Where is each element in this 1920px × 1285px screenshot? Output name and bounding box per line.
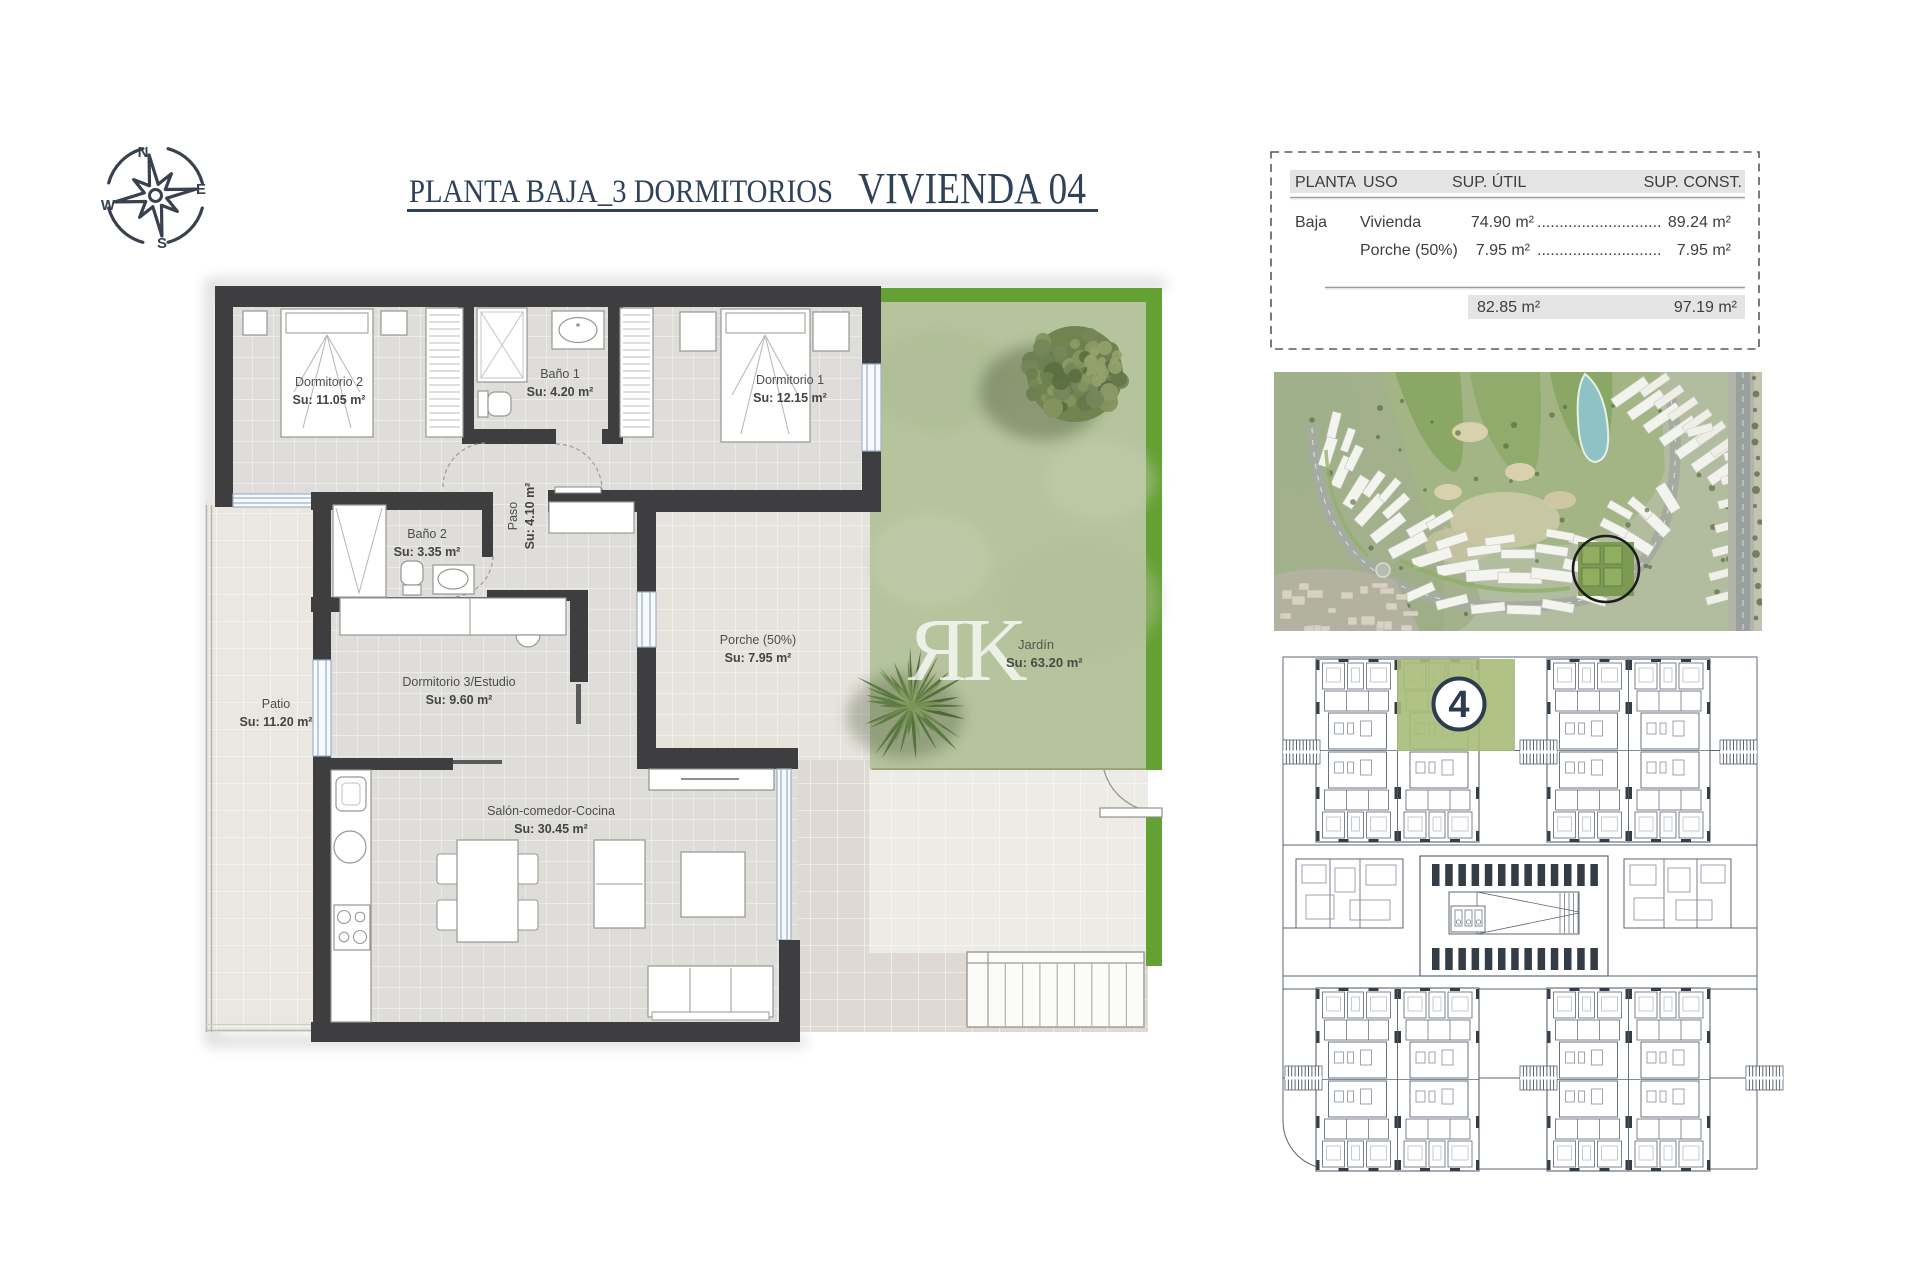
svg-text:Su: 30.45 m²: Su: 30.45 m² bbox=[514, 822, 588, 836]
svg-text:Su: 4.10 m²: Su: 4.10 m² bbox=[523, 483, 537, 550]
svg-text:Dormitorio 3/Estudio: Dormitorio 3/Estudio bbox=[402, 675, 515, 689]
svg-text:PLANTA: PLANTA bbox=[1295, 174, 1356, 191]
svg-text:Su: 12.15 m²: Su: 12.15 m² bbox=[753, 391, 827, 405]
svg-text:Dormitorio 2: Dormitorio 2 bbox=[295, 375, 363, 389]
svg-text:Su: 4.20 m²: Su: 4.20 m² bbox=[527, 385, 594, 399]
svg-text:Su: 11.20 m²: Su: 11.20 m² bbox=[240, 715, 313, 729]
svg-text:S: S bbox=[157, 235, 167, 252]
svg-text:Patio: Patio bbox=[262, 697, 291, 711]
svg-text:Su: 3.35 m²: Su: 3.35 m² bbox=[394, 545, 461, 559]
svg-text:PLANTA BAJA_3 DORMITORIOS: PLANTA BAJA_3 DORMITORIOS bbox=[409, 174, 833, 210]
svg-text:............................: ............................ bbox=[1537, 242, 1661, 259]
svg-text:Baja: Baja bbox=[1295, 214, 1327, 231]
svg-text:VIVIENDA 04: VIVIENDA 04 bbox=[858, 164, 1086, 213]
svg-text:Salón-comedor-Cocina: Salón-comedor-Cocina bbox=[487, 804, 615, 818]
svg-text:ЯK: ЯK bbox=[907, 601, 1027, 700]
svg-text:Jardín: Jardín bbox=[1018, 637, 1054, 652]
svg-text:Porche (50%): Porche (50%) bbox=[720, 633, 796, 647]
svg-text:SUP. CONST.: SUP. CONST. bbox=[1644, 174, 1742, 191]
svg-text:Paso: Paso bbox=[506, 502, 520, 531]
svg-text:N: N bbox=[138, 144, 149, 161]
svg-text:USO: USO bbox=[1363, 174, 1398, 191]
svg-text:Vivienda: Vivienda bbox=[1360, 214, 1421, 231]
svg-text:82.85 m²: 82.85 m² bbox=[1477, 299, 1541, 316]
svg-text:Porche (50%): Porche (50%) bbox=[1360, 242, 1458, 259]
svg-text:Baño 2: Baño 2 bbox=[407, 527, 447, 541]
svg-text:74.90 m²: 74.90 m² bbox=[1471, 214, 1535, 231]
svg-text:Su: 11.05 m²: Su: 11.05 m² bbox=[293, 393, 366, 407]
svg-text:89.24 m²: 89.24 m² bbox=[1668, 214, 1732, 231]
svg-text:Baño 1: Baño 1 bbox=[540, 367, 580, 381]
svg-text:Su: 7.95 m²: Su: 7.95 m² bbox=[725, 651, 792, 665]
svg-text:97.19 m²: 97.19 m² bbox=[1674, 299, 1738, 316]
svg-text:W: W bbox=[101, 197, 116, 214]
svg-text:7.95 m²: 7.95 m² bbox=[1476, 242, 1531, 259]
svg-text:4: 4 bbox=[1448, 684, 1469, 726]
svg-text:Dormitorio 1: Dormitorio 1 bbox=[756, 373, 824, 387]
svg-text:............................: ............................ bbox=[1537, 214, 1661, 231]
svg-text:E: E bbox=[196, 181, 206, 198]
svg-text:SUP. ÚTIL: SUP. ÚTIL bbox=[1452, 172, 1527, 191]
svg-text:Su: 63.20 m²: Su: 63.20 m² bbox=[1006, 655, 1083, 670]
svg-text:7.95 m²: 7.95 m² bbox=[1677, 242, 1732, 259]
svg-text:Su: 9.60 m²: Su: 9.60 m² bbox=[426, 693, 493, 707]
